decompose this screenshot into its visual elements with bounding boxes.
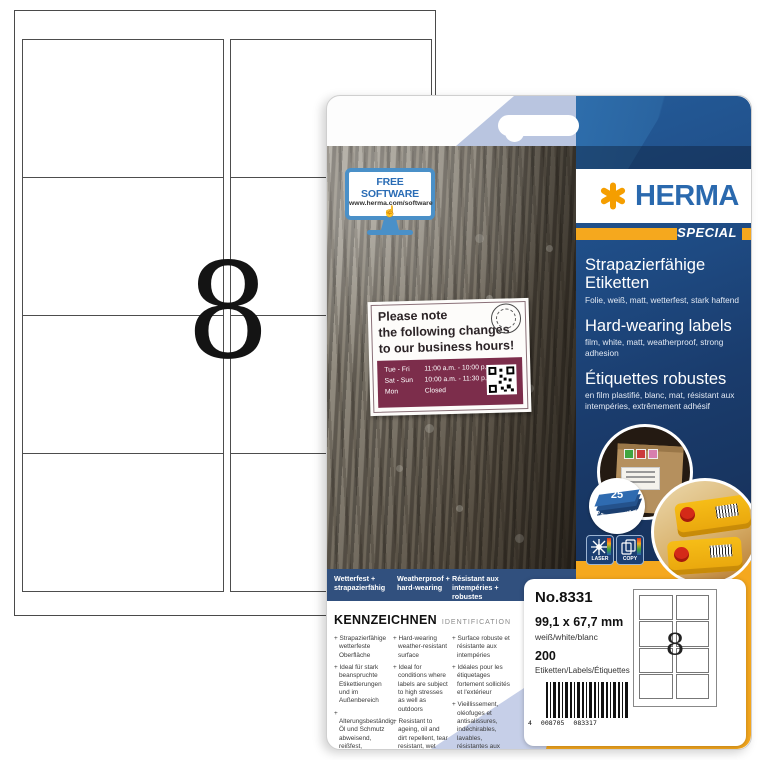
bullets-de: Strapazierfähige wetterfeste Oberfläche … <box>334 635 389 750</box>
bullet: Resistant to ageing, oil and dirt repell… <box>393 718 448 750</box>
bullet: Ideal für stark beanspruchte Etikettieru… <box>334 664 389 706</box>
sheet-count-badge: 25 210 mm 297 mm <box>589 478 645 534</box>
heading-de: KENNZEICHNEN <box>334 613 437 627</box>
bullet: Ideal for conditions where labels are su… <box>393 664 448 714</box>
sign-heading-line3: to our business hours! <box>379 337 515 357</box>
barcode-group1: 008705 <box>541 719 564 727</box>
orange-bar <box>576 228 677 240</box>
edition-label: SPECIAL <box>677 225 737 240</box>
subtitle-en: film, white, matt, weatherproof, strong … <box>585 337 745 359</box>
copy-label: COPY <box>617 556 643 562</box>
bullet: Idéales pour les étiquetages fortement s… <box>452 664 510 697</box>
business-hours-sign: Please note the following changes to our… <box>368 298 532 416</box>
feature-en: Weatherproof + hard-wearing <box>397 574 455 592</box>
special-band: SPECIAL <box>576 223 751 244</box>
barcode-prefix: 4 <box>528 719 532 727</box>
article-number: No.8331 <box>535 589 593 606</box>
monitor-stand <box>381 220 399 230</box>
monitor-base <box>367 230 413 235</box>
canisters-photo <box>651 478 752 586</box>
hours-time: Closed <box>425 387 446 395</box>
barcode-digits: 4 008705 083317 <box>528 719 638 727</box>
mini-label-pink <box>648 449 658 459</box>
sheet-height: 297 mm <box>624 507 641 516</box>
subtitle-de: Folie, weiß, matt, wetterfest, stark haf… <box>585 295 745 306</box>
hours-time: 11:00 a.m. - 10:00 p.m. <box>424 364 494 373</box>
product-info-card: No.8331 99,1 x 67,7 mm weiß/white/blanc … <box>524 579 746 746</box>
hours-table: Tue - Fri 11:00 a.m. - 10:00 p.m. Sat - … <box>377 357 523 408</box>
label-count: 200 <box>535 649 556 663</box>
rainbow-strip <box>637 538 641 555</box>
red-cap <box>680 507 695 522</box>
right-panel: HERMA SPECIAL Strapazierfähige Etiketten… <box>576 96 751 561</box>
copier-badge: COPY <box>616 535 644 565</box>
free-software-label: FREE SOFTWARE <box>349 176 431 200</box>
barcode-group2: 083317 <box>573 719 596 727</box>
bullets-fr: Surface robuste et résistante aux intemp… <box>452 635 510 750</box>
sheet-count: 25 <box>589 489 645 501</box>
laser-printer-badge: LASER <box>586 535 614 565</box>
hand-cursor-icon: ☝ <box>349 207 431 217</box>
hours-days: Mon <box>385 388 425 396</box>
package: HERMA SPECIAL Strapazierfähige Etiketten… <box>326 95 752 750</box>
label-colors: weiß/white/blanc <box>535 632 598 642</box>
copy-icon <box>620 539 638 555</box>
label-cell <box>22 453 224 592</box>
barcode <box>546 682 630 718</box>
hang-slot-bump <box>505 123 524 142</box>
hang-slot <box>498 108 579 142</box>
laser-label: LASER <box>587 556 613 562</box>
identification-heading: KENNZEICHNENIDENTIFICATION <box>334 613 511 627</box>
feature-fr: Résistant aux intempéries + robustes <box>452 574 516 601</box>
bullet: Strapazierfähige wetterfeste Oberfläche <box>334 635 389 660</box>
bullets-en: Hard-wearing weather-resistant surface I… <box>393 635 448 750</box>
canister-label <box>710 544 733 558</box>
hours-days: Sat - Sun <box>385 377 425 385</box>
title-de: Strapazierfähige Etiketten <box>585 256 745 293</box>
product-titles: Strapazierfähige Etiketten Folie, weiß, … <box>585 256 745 423</box>
hours-days: Tue - Fri <box>384 366 424 374</box>
rainbow-strip <box>607 538 611 555</box>
brand-name: HERMA <box>635 180 739 213</box>
free-software-monitor: FREE SOFTWARE www.herma.com/software ☝ <box>345 168 435 235</box>
bullet: Surface robuste et résistante aux intemp… <box>452 635 510 660</box>
heading-en: IDENTIFICATION <box>442 619 511 626</box>
laser-icon <box>590 539 608 555</box>
orange-bar <box>742 228 751 240</box>
label-count-caption: Etiketten/Labels/Étiquettes <box>535 666 630 675</box>
label-text-line <box>626 476 655 478</box>
qr-code <box>486 364 517 395</box>
mini-labels-per-sheet: 8 <box>634 628 716 663</box>
herma-asterisk-icon <box>598 181 628 211</box>
red-cap <box>674 547 689 562</box>
bullet: Vieillissement, oléofuges et antisalissu… <box>452 701 510 750</box>
label-text-line <box>626 471 655 473</box>
bullet: Alterungsbeständig, Öl und Schmutz abwei… <box>334 710 389 750</box>
sheet-width: 210 mm <box>592 508 609 518</box>
product-shot: 8 HERMA <box>0 0 760 760</box>
monitor-screen: FREE SOFTWARE www.herma.com/software ☝ <box>345 168 435 220</box>
bullet: Hard-wearing weather-resistant surface <box>393 635 448 660</box>
label-cell <box>22 39 224 178</box>
mini-label-green <box>624 449 634 459</box>
mini-label-red <box>636 449 646 459</box>
mini-sheet-preview: 8 <box>633 589 717 707</box>
title-fr: Étiquettes robustes <box>585 370 745 388</box>
subtitle-fr: en film plastifié, blanc, mat, résistant… <box>585 390 745 412</box>
labels-per-sheet-number: 8 <box>168 254 288 370</box>
panel-dark-band <box>576 146 751 169</box>
feature-de: Wetterfest + strapazierfähig <box>334 574 392 592</box>
round-stamp <box>491 303 522 334</box>
label-size: 99,1 x 67,7 mm <box>535 615 623 629</box>
hours-time: 10:00 a.m. - 11:30 p.m. <box>425 375 495 384</box>
title-en: Hard-wearing labels <box>585 317 745 335</box>
herma-logo-band: HERMA <box>576 169 751 223</box>
